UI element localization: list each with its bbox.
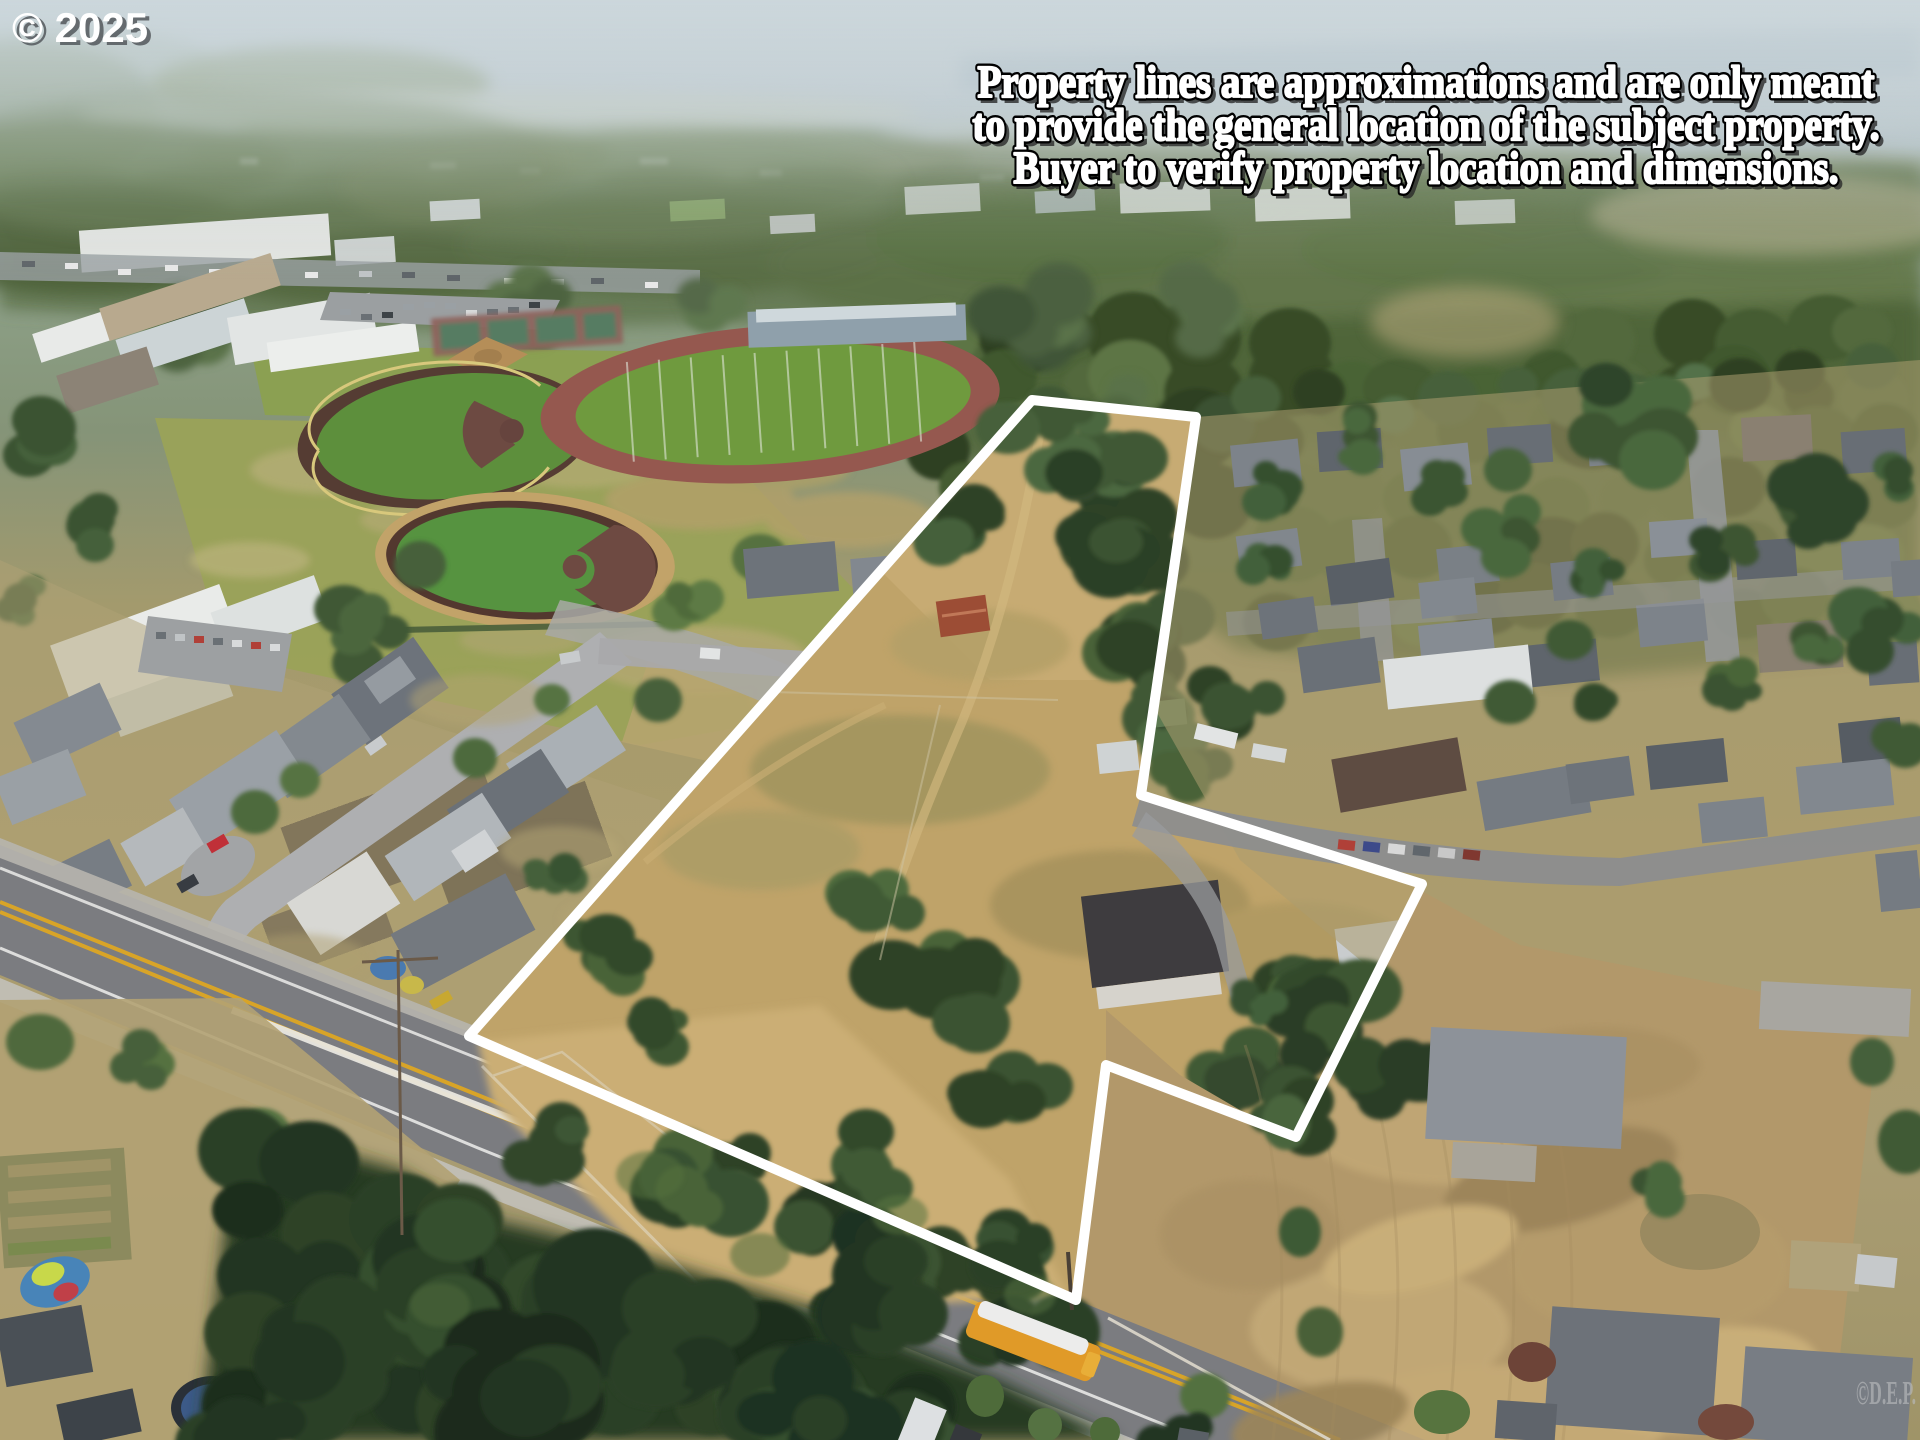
svg-text:©D.E.P.: ©D.E.P.: [1856, 1375, 1916, 1412]
svg-text:Buyer to verify property locat: Buyer to verify property location and di…: [1014, 142, 1839, 193]
svg-text:© 2025: © 2025: [12, 4, 148, 51]
